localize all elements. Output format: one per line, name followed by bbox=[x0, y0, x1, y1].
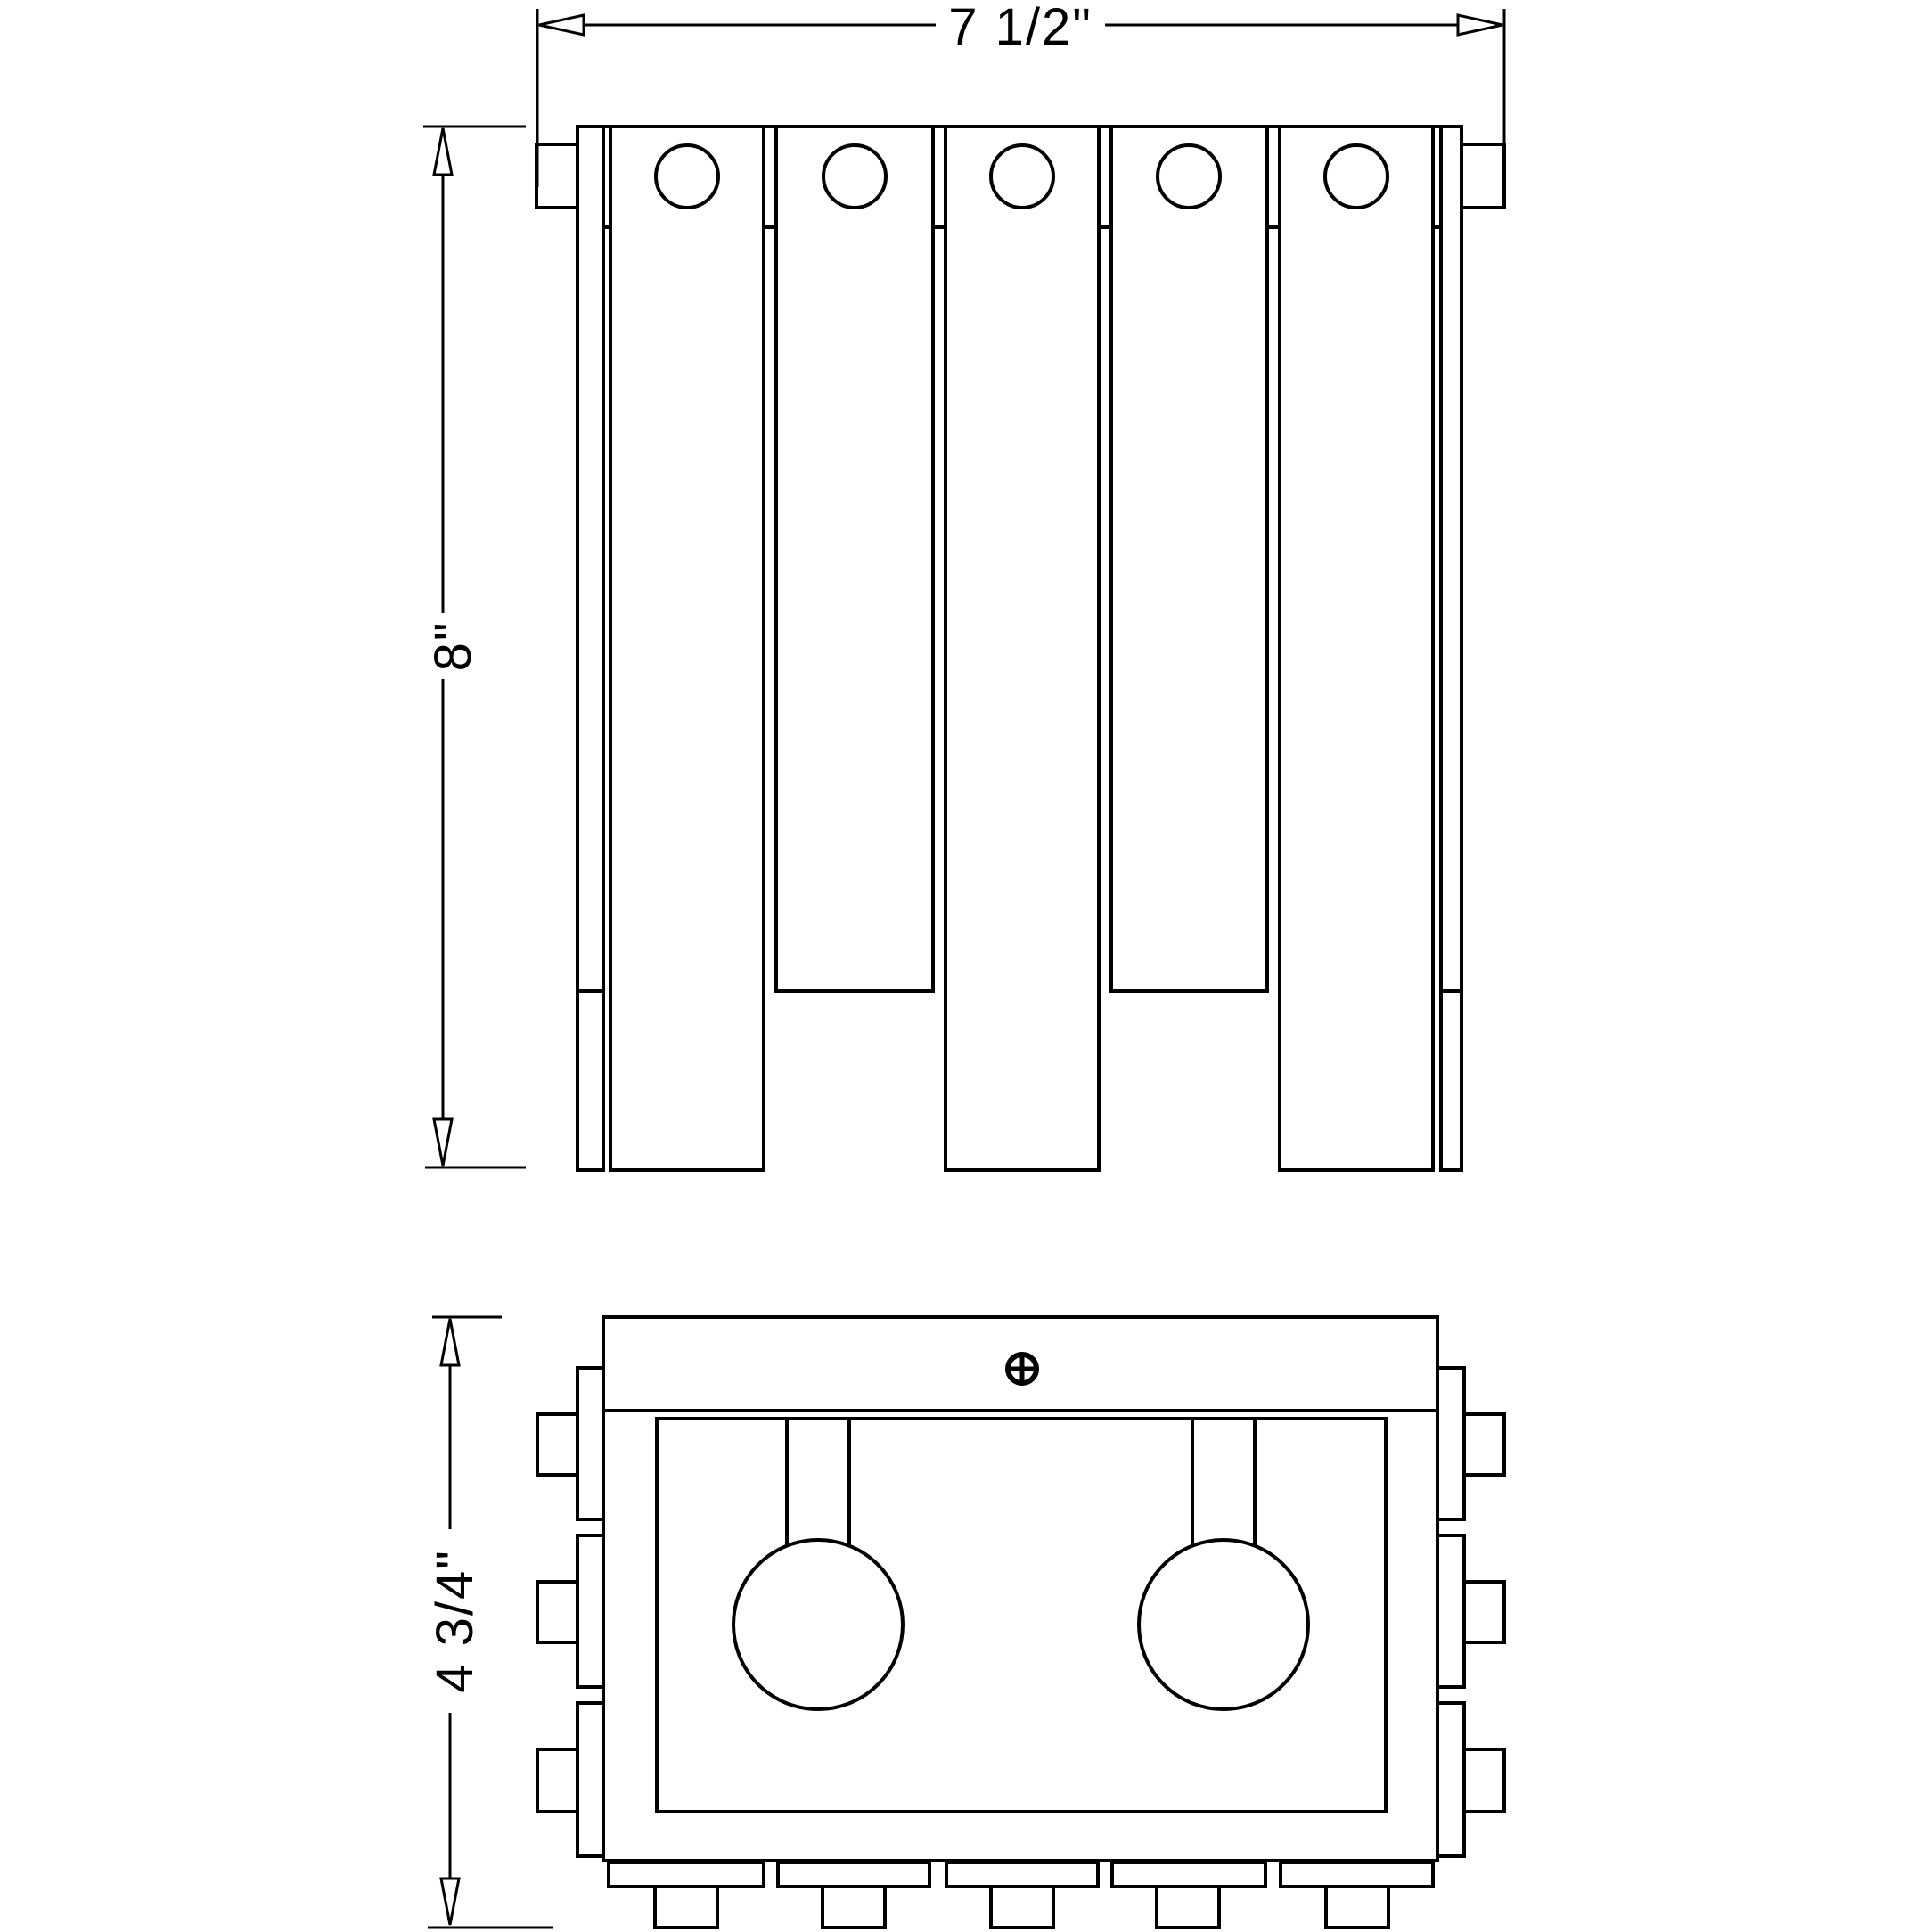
screw-head-icon bbox=[1007, 1354, 1037, 1384]
plan-right-plate-1 bbox=[1437, 1368, 1464, 1519]
plan-foot-narrow-2 bbox=[823, 1887, 885, 1928]
height-arrow-bottom bbox=[434, 1119, 452, 1166]
width-arrow-left bbox=[539, 15, 584, 35]
plan-housing bbox=[603, 1317, 1437, 1861]
plan-left-plate-1 bbox=[577, 1368, 603, 1519]
plan-foot-narrow-4 bbox=[1157, 1887, 1219, 1928]
lamp-circle-1 bbox=[733, 1540, 903, 1709]
plan-foot-wide-1 bbox=[609, 1862, 764, 1887]
slat-hole-5 bbox=[1325, 145, 1388, 208]
depth-arrow-bottom bbox=[441, 1879, 459, 1925]
slat-4 bbox=[1111, 127, 1267, 991]
plan-left-plate-2 bbox=[577, 1535, 603, 1687]
plan-foot-wide-5 bbox=[1281, 1862, 1433, 1887]
plan-foot-narrow-3 bbox=[991, 1887, 1053, 1928]
depth-arrow-top bbox=[441, 1319, 459, 1365]
slat-1 bbox=[610, 127, 764, 1170]
height-arrow-top bbox=[434, 128, 452, 175]
plan-left-plate-3 bbox=[577, 1703, 603, 1856]
plan-right-plate-3 bbox=[1437, 1703, 1464, 1856]
front-right-tab bbox=[1461, 144, 1504, 208]
lamp-circle-2 bbox=[1139, 1540, 1308, 1709]
slat-2 bbox=[776, 127, 933, 991]
front-left-tab bbox=[536, 144, 577, 208]
plan-left-tab-3 bbox=[537, 1749, 577, 1812]
drawing-canvas: 7 1/2" 8" 4 3/4" bbox=[0, 0, 1932, 1932]
plan-left-tab-1 bbox=[537, 1414, 577, 1475]
slat-3 bbox=[946, 127, 1099, 1170]
plan-right-plate-2 bbox=[1437, 1535, 1464, 1687]
plan-foot-wide-2 bbox=[778, 1862, 929, 1887]
depth-dimension-label: 4 3/4" bbox=[426, 1549, 484, 1693]
slat-5 bbox=[1280, 127, 1433, 1170]
top-plan-view bbox=[537, 1317, 1504, 1928]
front-left-strip bbox=[577, 127, 603, 1170]
plan-foot-wide-4 bbox=[1112, 1862, 1265, 1887]
spec-drawing: 7 1/2" 8" 4 3/4" bbox=[0, 0, 1932, 1932]
plan-right-tab-3 bbox=[1464, 1749, 1504, 1812]
width-arrow-right bbox=[1458, 15, 1502, 35]
height-dimension-label: 8" bbox=[424, 621, 482, 672]
plan-foot-narrow-1 bbox=[655, 1887, 717, 1928]
plan-right-tab-2 bbox=[1464, 1582, 1504, 1642]
dimension-height: 8" bbox=[423, 127, 526, 1167]
plan-foot-wide-3 bbox=[946, 1862, 1098, 1887]
slat-hole-1 bbox=[656, 145, 718, 208]
front-right-strip bbox=[1441, 127, 1461, 1170]
dimension-depth: 4 3/4" bbox=[426, 1317, 553, 1928]
front-elevation-view bbox=[536, 127, 1504, 1170]
plan-right-tab-1 bbox=[1464, 1414, 1504, 1475]
plan-left-tab-2 bbox=[537, 1582, 577, 1642]
dimension-width: 7 1/2" bbox=[537, 0, 1504, 187]
slat-hole-3 bbox=[991, 145, 1053, 208]
plan-foot-narrow-5 bbox=[1326, 1887, 1388, 1928]
slat-hole-4 bbox=[1158, 145, 1220, 208]
slat-hole-2 bbox=[823, 145, 886, 208]
width-dimension-label: 7 1/2" bbox=[948, 0, 1093, 56]
